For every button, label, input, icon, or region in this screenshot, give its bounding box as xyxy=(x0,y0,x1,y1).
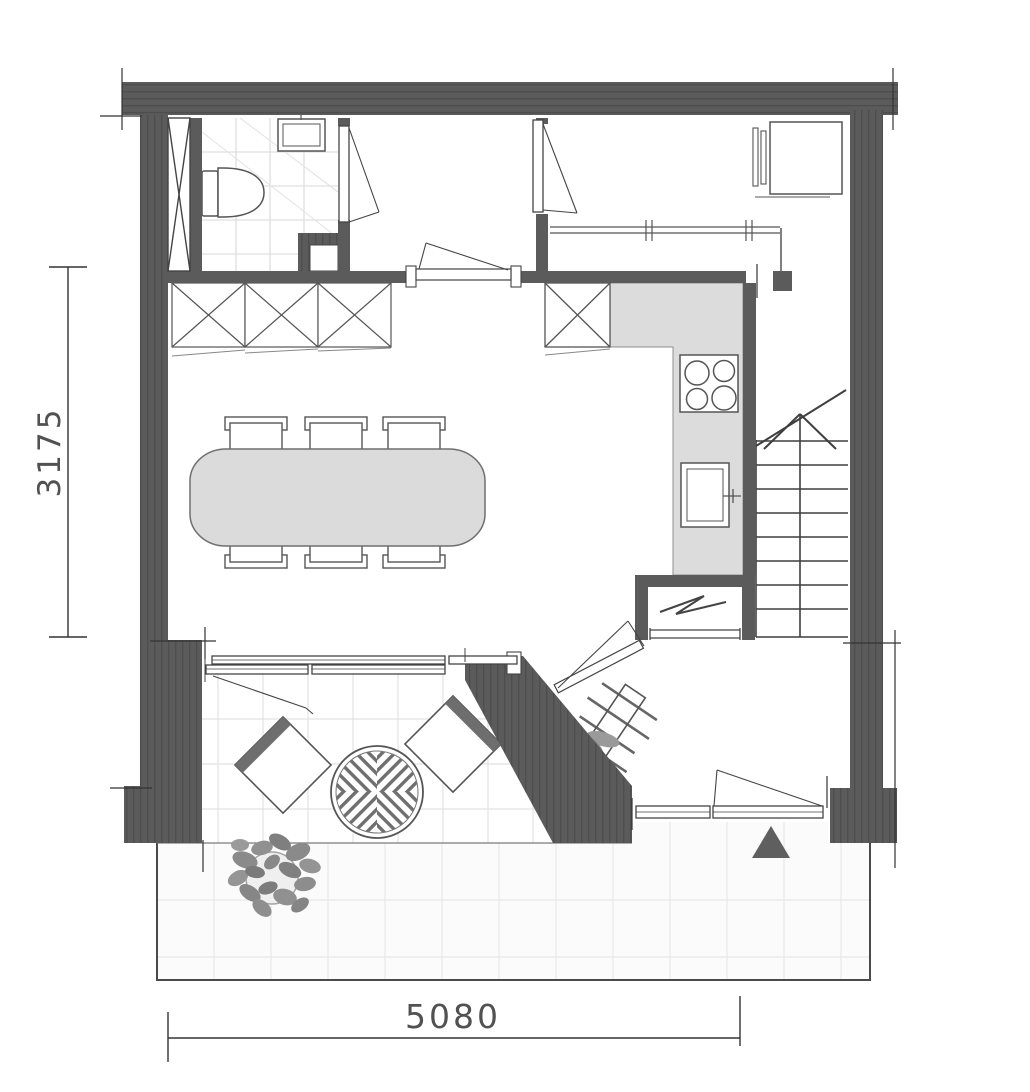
hob-icon xyxy=(680,355,738,412)
wardrobe-x-icons xyxy=(172,283,391,356)
bathroom-door xyxy=(339,126,379,222)
bathroom-wall-stub xyxy=(338,118,350,126)
storage-room-door xyxy=(406,243,521,287)
door-leaf xyxy=(533,120,543,212)
right-wall xyxy=(850,110,883,843)
shaft-x-icon xyxy=(168,118,190,271)
dining-table-icon xyxy=(190,449,485,546)
door-post xyxy=(406,266,416,287)
door-swing-icon xyxy=(426,243,508,270)
wardrobe-x-icon xyxy=(172,283,245,347)
interior-door xyxy=(533,120,577,213)
hall-window-band xyxy=(636,770,823,818)
kitchen-wall xyxy=(743,283,756,575)
door-leaf xyxy=(416,269,511,280)
boiler-zigzag-icon xyxy=(650,596,740,640)
niche-wall-right xyxy=(742,575,755,640)
interior-wall-a xyxy=(168,271,408,283)
wardrobe-x-icon xyxy=(318,283,391,347)
clothes-rail-icon xyxy=(550,220,781,271)
door-swing-icon xyxy=(349,212,379,222)
door-swing-icon xyxy=(543,124,577,213)
door-swing-icon xyxy=(717,770,822,806)
dining-chair-icon xyxy=(225,417,287,451)
door-leaf xyxy=(554,640,643,692)
toilet-icon xyxy=(202,168,264,217)
sliding-window-icon xyxy=(636,806,823,818)
staircase-icon xyxy=(756,390,848,637)
dimension-label-vertical: 3175 xyxy=(32,407,68,498)
niche-wall-top xyxy=(635,575,755,587)
tall-cabinet-x-icon xyxy=(545,283,610,355)
dining-chair-icon xyxy=(383,417,445,451)
dining-chair-icon xyxy=(305,417,367,451)
wardrobe-x-icon xyxy=(245,283,318,347)
door-swing-icon xyxy=(543,210,577,213)
door-post xyxy=(511,266,521,287)
door-swing-icon xyxy=(349,128,379,212)
left-wall-upper xyxy=(140,115,168,640)
floor-plan-drawing: 3175 5080 xyxy=(0,0,1030,1092)
door-leaf xyxy=(339,126,349,222)
shaft-wall xyxy=(190,118,202,272)
round-rattan-table-icon xyxy=(331,746,423,838)
door-swing-icon xyxy=(419,243,426,269)
door-post-wall xyxy=(773,271,792,291)
left-wall-step xyxy=(124,786,140,843)
partition-stub xyxy=(536,214,548,283)
right-wall-pillar xyxy=(830,788,897,843)
interior-wall-b xyxy=(519,271,746,283)
niche-wall-left xyxy=(635,575,648,640)
door-swing-icon xyxy=(714,770,717,806)
dimension-label-horizontal: 5080 xyxy=(405,997,501,1036)
left-wall-lower xyxy=(140,640,202,843)
washbasin-icon xyxy=(278,112,325,151)
kitchen-counter xyxy=(610,283,743,575)
washing-machine-icon xyxy=(753,122,842,197)
floor-plan-canvas: 3175 5080 xyxy=(0,0,1030,1092)
top-wall xyxy=(122,82,898,115)
